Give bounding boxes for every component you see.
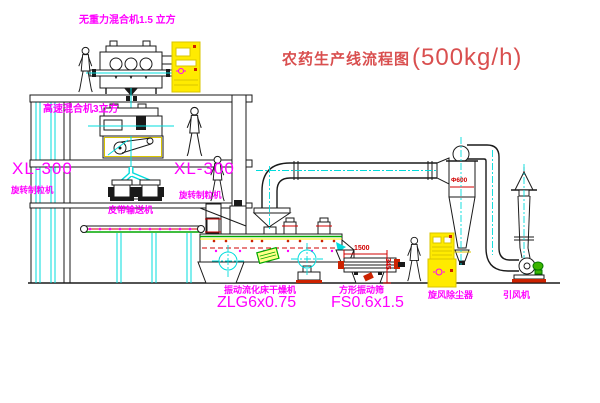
indicator-light xyxy=(194,68,197,71)
label-granulator-left-name: 旋转制粒机 xyxy=(11,186,54,195)
label-belt-conveyor: 皮带输送机 xyxy=(108,206,153,215)
worker-figure xyxy=(187,107,202,155)
label-granulator-right-name: 旋转制粒机 xyxy=(179,191,222,200)
control-cabinet-top xyxy=(172,42,200,92)
granulator-left xyxy=(108,180,136,201)
dim-sieve-length: 1500 xyxy=(354,245,370,252)
label-granulator-left-model: XL-300 xyxy=(12,160,73,177)
label-cyclone: 旋风除尘器 xyxy=(428,291,473,300)
label-sieve-model: FS0.6x1.5 xyxy=(331,295,404,311)
indicator-light xyxy=(450,269,453,272)
label-granulator-right-model: XL-300 xyxy=(174,160,235,177)
label-fan: 引风机 xyxy=(503,291,530,300)
exhaust-duct xyxy=(254,161,446,234)
floor-slab-top xyxy=(30,95,252,102)
feed-tower xyxy=(230,206,246,234)
dryer-pedestal xyxy=(198,262,244,283)
fan-motor xyxy=(533,262,543,270)
indicator-light xyxy=(193,45,196,48)
process-flow-diagram: 农药生产线流程图 (500kg/h) 无重力混合机1.5 立方 高速混合机3立方… xyxy=(0,0,600,403)
indicator-light xyxy=(449,235,452,238)
granulator-section xyxy=(108,167,164,201)
label-gravity-mixer: 无重力混合机1.5 立方 xyxy=(79,16,176,26)
control-cabinet-right xyxy=(428,233,456,287)
column-right xyxy=(232,95,246,208)
title-text: 农药生产线流程图 xyxy=(282,48,410,72)
label-dryer-model: ZLG6x0.75 xyxy=(217,295,296,311)
induced-draft-fan xyxy=(512,258,546,283)
belt-conveyor xyxy=(81,226,205,233)
label-high-speed-mixer: 高速混合机3立方 xyxy=(43,105,119,115)
title-capacity: (500kg/h) xyxy=(412,44,522,72)
dim-sieve-height: 345 xyxy=(384,258,391,270)
motor-box xyxy=(103,136,163,158)
drawing-title: 农药生产线流程图 (500kg/h) xyxy=(282,44,522,72)
dim-cyclone-diameter: Φ600 xyxy=(451,178,467,185)
vibrating-sieve xyxy=(336,250,405,283)
worker-figure xyxy=(408,237,421,281)
granulator-right xyxy=(136,180,164,201)
